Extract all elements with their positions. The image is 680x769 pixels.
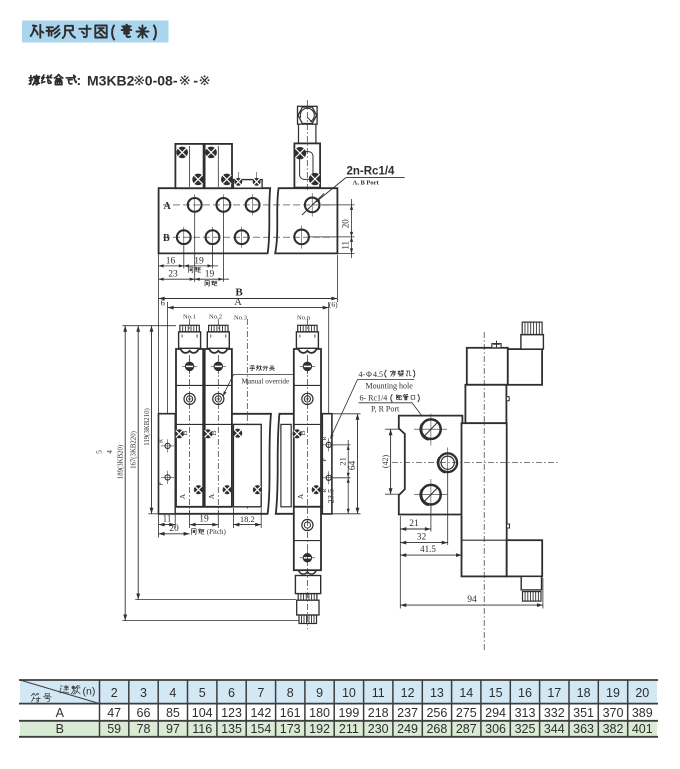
- svg-text:218: 218: [368, 706, 389, 720]
- svg-text:A: A: [207, 493, 216, 499]
- svg-text:P, R Port: P, R Port: [371, 405, 400, 414]
- svg-text:189(3KB20): 189(3KB20): [118, 445, 125, 479]
- svg-text:A: A: [234, 297, 242, 308]
- svg-text:13: 13: [430, 686, 444, 700]
- svg-text:18.2: 18.2: [240, 514, 255, 524]
- svg-text:2: 2: [111, 686, 118, 700]
- svg-text:306: 306: [485, 722, 506, 736]
- svg-text:161: 161: [280, 706, 301, 720]
- svg-text:199: 199: [338, 706, 359, 720]
- svg-text:20: 20: [169, 524, 179, 534]
- svg-text:No.2: No.2: [209, 314, 222, 321]
- svg-text:192: 192: [309, 722, 330, 736]
- svg-text:6: 6: [161, 298, 165, 308]
- svg-text:85: 85: [166, 706, 180, 720]
- svg-text:19: 19: [194, 257, 204, 267]
- svg-text:10: 10: [342, 686, 356, 700]
- svg-text:135: 135: [221, 722, 242, 736]
- svg-text:B: B: [163, 233, 170, 244]
- svg-text:B: B: [298, 430, 307, 435]
- svg-text:237: 237: [397, 706, 418, 720]
- svg-text:M3KB2: M3KB2: [87, 73, 135, 89]
- svg-text:287: 287: [456, 722, 477, 736]
- svg-text:11: 11: [163, 514, 172, 524]
- svg-text:4: 4: [105, 450, 114, 454]
- svg-text:6- Rc1/4: 6- Rc1/4: [360, 394, 388, 403]
- svg-text:363: 363: [573, 722, 594, 736]
- svg-text:142: 142: [250, 706, 271, 720]
- svg-text:21: 21: [337, 457, 347, 466]
- svg-text:275: 275: [456, 706, 477, 720]
- svg-text:230: 230: [368, 722, 389, 736]
- svg-text:4.5: 4.5: [373, 370, 383, 379]
- svg-text:No.1: No.1: [183, 314, 196, 321]
- svg-text:B: B: [56, 722, 64, 736]
- svg-text:351: 351: [573, 706, 594, 720]
- svg-text:20: 20: [635, 686, 649, 700]
- svg-text:78: 78: [137, 722, 151, 736]
- svg-text:18: 18: [577, 686, 591, 700]
- svg-text:294: 294: [485, 706, 506, 720]
- svg-text:A: A: [296, 493, 305, 499]
- svg-text:123: 123: [221, 706, 242, 720]
- svg-text:4-: 4-: [359, 370, 366, 379]
- svg-text:15: 15: [489, 686, 503, 700]
- svg-text:313: 313: [515, 706, 536, 720]
- svg-text:332: 332: [544, 706, 565, 720]
- svg-text:No.n: No.n: [297, 315, 311, 322]
- svg-text:173: 173: [280, 722, 301, 736]
- svg-text:3: 3: [140, 686, 147, 700]
- svg-text:(n): (n): [83, 686, 96, 698]
- svg-text:2n-Rc1/4: 2n-Rc1/4: [347, 166, 396, 178]
- svg-text:47: 47: [107, 706, 121, 720]
- svg-text:256: 256: [426, 706, 447, 720]
- svg-text:64: 64: [348, 461, 358, 471]
- svg-text:167(3KB220): 167(3KB220): [131, 431, 138, 469]
- svg-text:(Pitch): (Pitch): [207, 528, 227, 536]
- svg-text:401: 401: [632, 722, 653, 736]
- svg-text:66: 66: [137, 706, 151, 720]
- svg-text:(6): (6): [329, 300, 338, 309]
- svg-text:249: 249: [397, 722, 418, 736]
- svg-text:59: 59: [107, 722, 121, 736]
- svg-text:19: 19: [205, 270, 215, 280]
- svg-text:16: 16: [166, 257, 176, 267]
- svg-text:A: A: [178, 493, 187, 499]
- svg-text:Φ: Φ: [366, 370, 372, 379]
- svg-text:Mounting hole: Mounting hole: [366, 382, 414, 391]
- svg-text:32: 32: [417, 532, 427, 542]
- svg-text:116: 116: [192, 722, 212, 736]
- svg-text:8: 8: [287, 686, 294, 700]
- svg-text:119(3KB210): 119(3KB210): [144, 408, 151, 446]
- svg-text:14: 14: [459, 686, 473, 700]
- svg-text:23: 23: [168, 270, 178, 280]
- svg-text:97: 97: [166, 722, 180, 736]
- svg-text:12: 12: [401, 686, 415, 700]
- svg-text:R: R: [159, 439, 165, 443]
- svg-text:20: 20: [341, 219, 351, 229]
- svg-text:325: 325: [515, 722, 536, 736]
- svg-text:11: 11: [341, 241, 351, 250]
- svg-text:6: 6: [228, 686, 235, 700]
- svg-text:9: 9: [316, 686, 323, 700]
- svg-text:94: 94: [467, 595, 477, 605]
- svg-text:A, B Port: A, B Port: [353, 180, 380, 187]
- svg-text:344: 344: [544, 722, 565, 736]
- svg-text:16: 16: [518, 686, 532, 700]
- svg-text:B: B: [180, 430, 189, 435]
- svg-text:268: 268: [426, 722, 447, 736]
- svg-text:5: 5: [95, 450, 104, 454]
- svg-text:17: 17: [547, 686, 561, 700]
- svg-text:R: R: [322, 436, 328, 440]
- svg-text:-: -: [193, 73, 198, 89]
- svg-text:(42): (42): [381, 455, 390, 469]
- svg-text:23.5: 23.5: [326, 489, 336, 504]
- svg-text:7: 7: [257, 686, 264, 700]
- svg-text:382: 382: [603, 722, 624, 736]
- svg-text:180: 180: [309, 706, 330, 720]
- svg-text:104: 104: [192, 706, 213, 720]
- svg-text:5: 5: [199, 686, 206, 700]
- svg-text:154: 154: [250, 722, 271, 736]
- svg-text:11: 11: [372, 686, 385, 700]
- svg-text:0-08-: 0-08-: [145, 73, 178, 89]
- svg-text:No.3: No.3: [234, 314, 248, 321]
- svg-text::: :: [77, 72, 82, 88]
- svg-text:A: A: [164, 201, 172, 212]
- svg-text:21: 21: [409, 519, 419, 529]
- svg-text:Manual override: Manual override: [242, 377, 290, 385]
- svg-text:19: 19: [199, 515, 209, 525]
- svg-text:389: 389: [632, 706, 653, 720]
- svg-text:19: 19: [606, 686, 620, 700]
- svg-text:4: 4: [169, 686, 176, 700]
- svg-text:A: A: [56, 706, 65, 720]
- svg-text:41.5: 41.5: [420, 544, 436, 554]
- svg-text:211: 211: [339, 722, 359, 736]
- svg-text:370: 370: [603, 706, 624, 720]
- svg-text:B: B: [209, 430, 218, 435]
